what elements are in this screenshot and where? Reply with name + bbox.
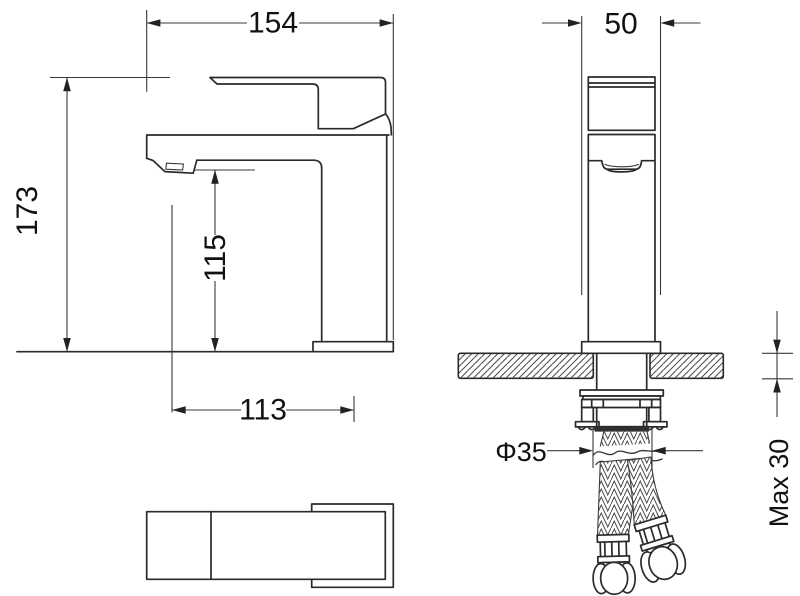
front-view: 154 173 115 113 [11, 7, 393, 427]
technical-drawing-page: 154 173 115 113 [0, 0, 800, 596]
countertop-right-slab [650, 353, 723, 378]
dim-label-base-width: 50 [604, 8, 637, 41]
lock-nut [582, 400, 661, 408]
faucet-footprint-top-view [147, 512, 386, 580]
dimension-173: 173 [11, 78, 170, 352]
arrowhead-right-icon [340, 406, 354, 414]
arrowhead-right-icon [579, 447, 593, 455]
dim-label-overall-width: 154 [248, 7, 298, 40]
hose-right [628, 457, 666, 525]
arrowhead-up-icon [211, 170, 219, 184]
washer-plate [580, 390, 663, 396]
faucet-front-outline [17, 78, 393, 352]
supply-hoses [592, 431, 689, 595]
dimension-115: 115 [195, 170, 255, 352]
arrowhead-left-icon [661, 19, 675, 27]
aerator [147, 158, 197, 173]
arrowhead-up-icon [63, 78, 71, 92]
faucet-side-outline [582, 77, 661, 390]
nut-tab-left [582, 408, 594, 422]
arrowhead-down-icon [63, 338, 71, 352]
dim-label-overall-height: 173 [11, 186, 44, 236]
dim-label-spout-reach: 113 [239, 394, 287, 427]
arrowhead-right-icon [568, 19, 582, 27]
hose-right-fitting [629, 514, 689, 586]
arrowhead-up-icon [773, 379, 781, 393]
dimension-50: 50 [542, 8, 701, 296]
hose-left-fitting [592, 534, 636, 595]
arrowhead-down-icon [773, 340, 781, 354]
dimension-max30: Max 30 [762, 311, 794, 527]
countertop [458, 353, 723, 378]
dim-label-hole-diameter: Φ35 [495, 437, 547, 467]
nut-tab-right [649, 408, 661, 422]
base-flange-side [582, 342, 661, 354]
countertop-left-slab [458, 353, 593, 378]
top-view [147, 504, 394, 587]
dim-label-max-thickness: Max 30 [764, 439, 794, 528]
arrowhead-down-icon [211, 338, 219, 352]
threaded-shank [597, 353, 647, 390]
shank-end-bar [595, 426, 648, 431]
mounting-nut-assembly [576, 390, 668, 431]
lever-handle [210, 78, 391, 135]
aerator-screen [166, 163, 184, 170]
arrowhead-left-icon [147, 19, 161, 27]
arrowhead-left-icon [172, 406, 186, 414]
aerator-side-ring [605, 164, 639, 166]
arrowhead-right-icon [380, 19, 394, 27]
base-flange-front [313, 342, 393, 352]
body-column-side [588, 77, 655, 342]
faucet-technical-drawing: 154 173 115 113 [0, 0, 800, 596]
side-view: 50 Φ35 Max 30 [458, 8, 794, 595]
dim-label-spout-height: 115 [199, 234, 232, 282]
